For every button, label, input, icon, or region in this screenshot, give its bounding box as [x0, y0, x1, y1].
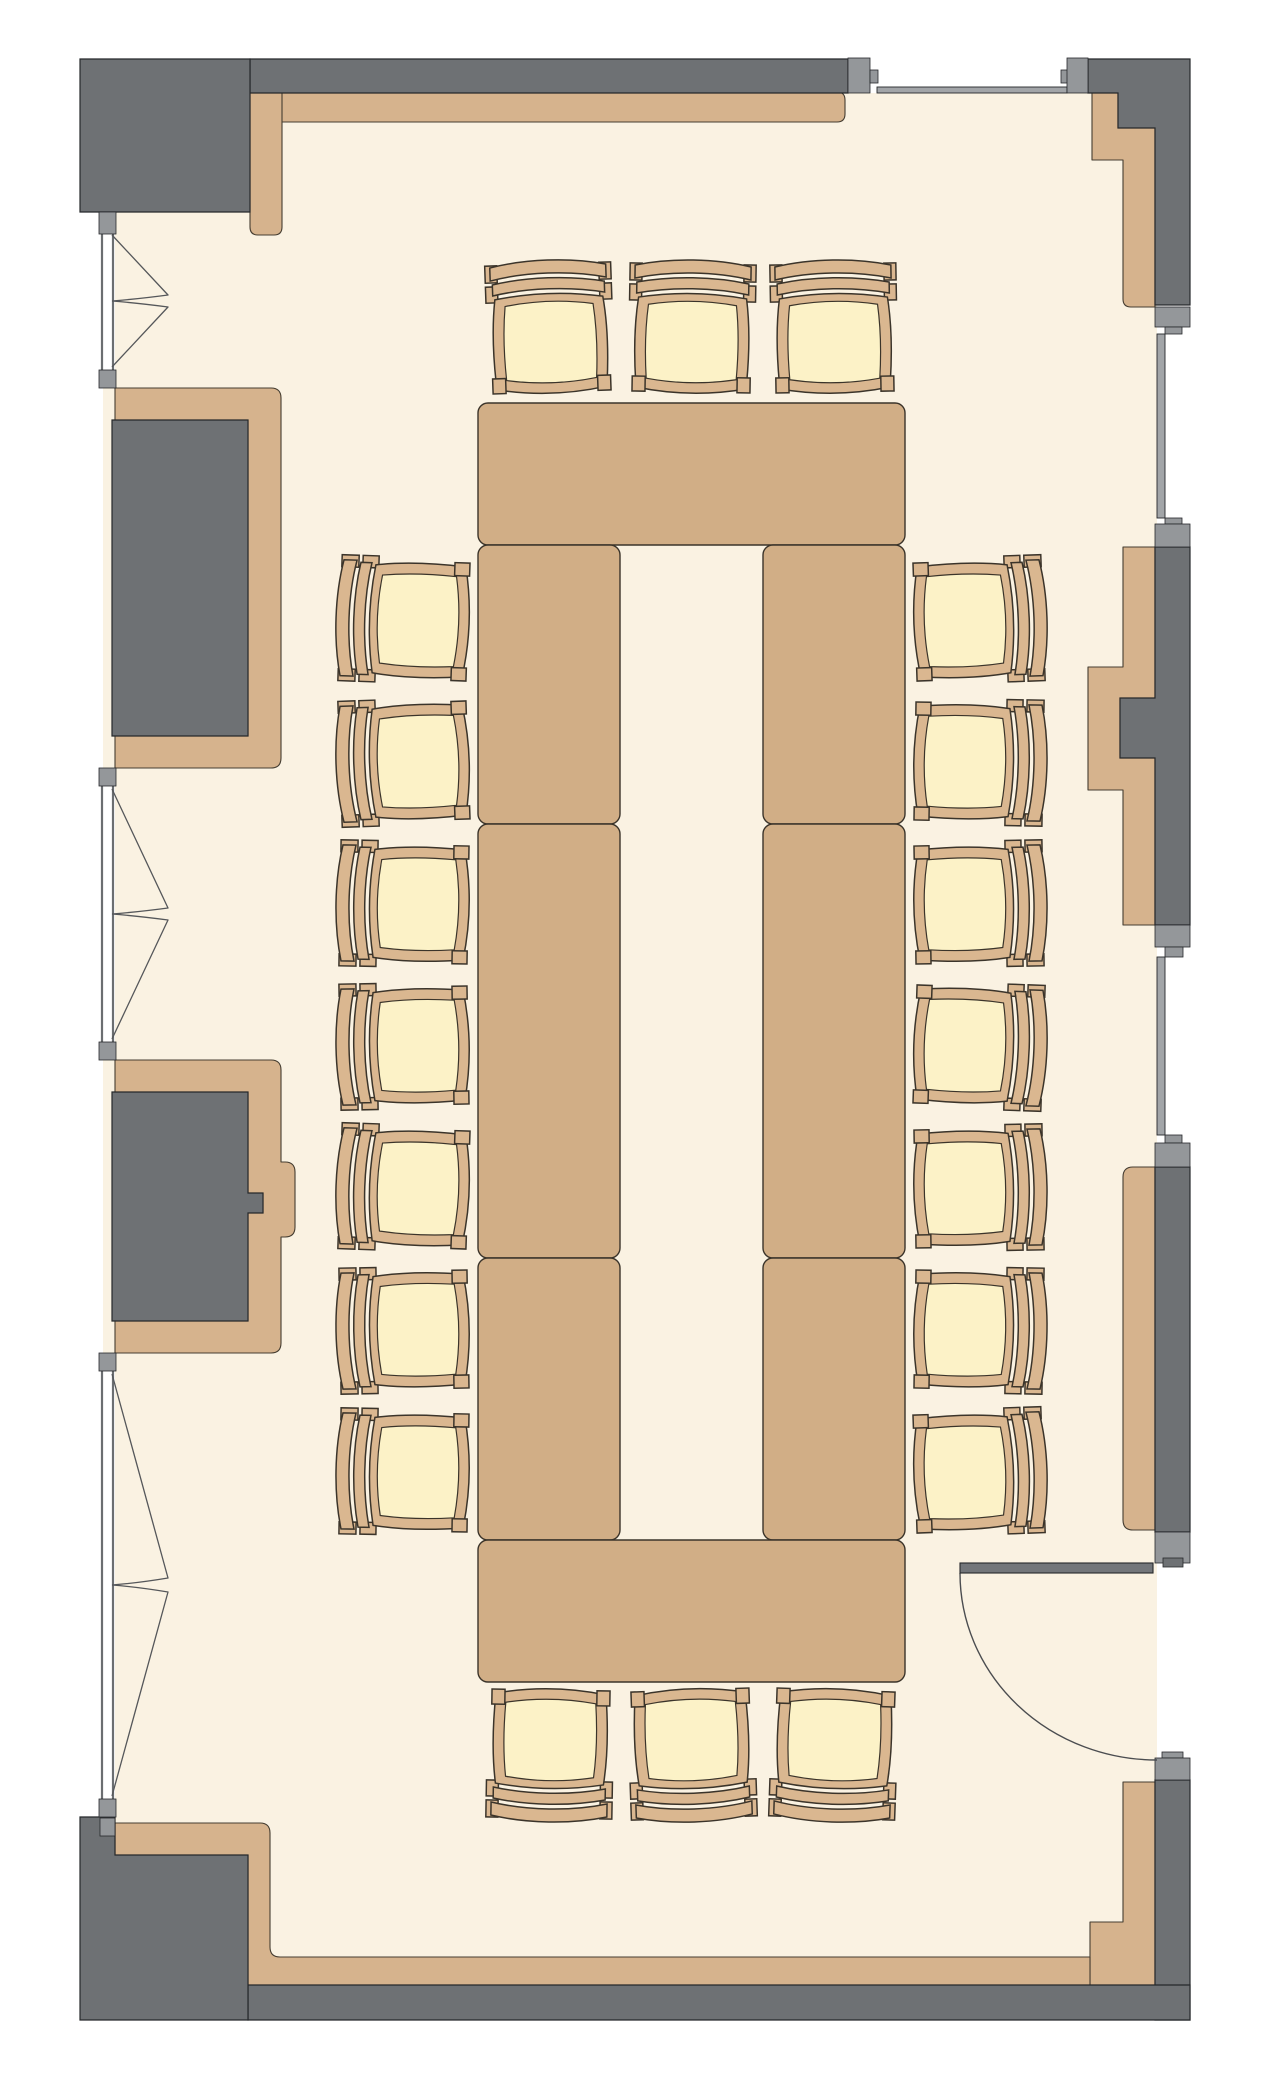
- chair-seat-cushion: [376, 857, 459, 951]
- chair-front-post: [914, 807, 929, 820]
- window-jamb-block: [1067, 58, 1088, 93]
- chair-seat-cushion: [503, 1698, 597, 1781]
- chair-front-post: [493, 379, 507, 394]
- chair-seat-cushion: [923, 1141, 1006, 1235]
- window-jamb-block: [1165, 947, 1183, 957]
- chair-front-post: [452, 986, 467, 999]
- chair-front-post: [914, 846, 929, 859]
- chair-front-post: [917, 1520, 932, 1534]
- chair-seat-cushion: [923, 1283, 1006, 1377]
- chair-front-post: [451, 1236, 466, 1250]
- chair-front-post: [452, 951, 467, 964]
- chair-front-post: [451, 701, 466, 715]
- chair-front-post: [917, 985, 932, 999]
- wall-top-band: [250, 59, 848, 93]
- right-window-frame-strip: [1157, 957, 1165, 1135]
- window-jamb-block: [99, 370, 116, 388]
- finish-top-band: [267, 92, 845, 122]
- table-north: [478, 403, 905, 545]
- chair-front-post: [597, 1691, 610, 1706]
- chair-front-post: [916, 1235, 931, 1248]
- chair-seat-cushion: [376, 1283, 459, 1377]
- wall-pier-left-upper: [112, 420, 248, 736]
- chair-front-post: [631, 1692, 645, 1707]
- chair-front-post: [736, 1688, 750, 1703]
- chair-seat-cushion: [923, 715, 1006, 809]
- chair-seat-cushion: [923, 573, 1008, 669]
- chair-seat-cushion: [787, 300, 881, 383]
- chair-front-post: [917, 668, 932, 682]
- chair-front-post: [455, 563, 470, 577]
- floor-plan-canvas: [0, 0, 1276, 2100]
- chair-front-post: [776, 378, 789, 393]
- chair-front-post: [632, 376, 645, 391]
- chair-front-post: [882, 1692, 896, 1707]
- chair-front-post: [452, 1270, 467, 1283]
- window-jamb-block: [1163, 1558, 1183, 1567]
- door-leaf: [960, 1563, 1153, 1573]
- window-jamb-block: [1155, 1758, 1190, 1780]
- window-jamb-block: [100, 1818, 115, 1836]
- chair-front-post: [455, 1131, 470, 1145]
- chair-front-post: [914, 1375, 929, 1388]
- chair-front-post: [454, 846, 469, 859]
- window-jamb-block: [1155, 925, 1190, 947]
- chair-seat-cushion: [787, 1698, 883, 1783]
- chair-front-post: [454, 1414, 469, 1427]
- window-jamb-block: [1155, 524, 1190, 547]
- window-jamb-block: [848, 58, 870, 93]
- wall-pier-left-lower: [112, 1092, 263, 1321]
- window-jamb-block: [99, 768, 116, 786]
- chair-front-post: [598, 375, 612, 390]
- window-jamb-block: [1155, 307, 1190, 327]
- chair-front-post: [451, 668, 466, 682]
- wall-pier-right-bottom: [1155, 1780, 1190, 2020]
- chair-front-post: [737, 378, 750, 393]
- finish-pier-right-door: [1123, 1167, 1155, 1530]
- chair-front-post: [916, 702, 931, 715]
- chair-seat-cushion: [923, 857, 1006, 951]
- chair-seat-cushion: [644, 1698, 740, 1783]
- window-jamb-block: [99, 1353, 116, 1371]
- conference-room-floor-plan: [0, 0, 1276, 2100]
- chair-seat-cushion: [376, 1425, 459, 1519]
- window-jamb-block: [99, 1799, 116, 1817]
- chair-seat-cushion: [376, 1141, 461, 1237]
- chair-front-post: [881, 376, 894, 391]
- chair-seat-cushion: [923, 998, 1008, 1094]
- chair-seat-cushion: [503, 300, 599, 385]
- wall-corner-top-left: [80, 59, 250, 212]
- chair-front-post: [455, 806, 470, 820]
- chair-front-post: [916, 951, 931, 964]
- chair-front-post: [454, 1091, 469, 1104]
- table-east-1: [763, 545, 905, 824]
- chair-seat-cushion: [923, 1425, 1008, 1521]
- chair-front-post: [454, 1375, 469, 1388]
- table-west-2: [478, 824, 620, 1258]
- chair-front-post: [913, 563, 928, 577]
- chair-seat-cushion: [645, 300, 739, 383]
- table-east-2: [763, 824, 905, 1258]
- window-jamb-block: [1165, 1135, 1182, 1143]
- chair-front-post: [777, 1688, 791, 1703]
- table-west-1: [478, 545, 620, 824]
- window-jamb-block: [99, 1042, 116, 1060]
- chair-front-post: [452, 1519, 467, 1532]
- chair-front-post: [916, 1270, 931, 1283]
- chair-front-post: [913, 1090, 928, 1104]
- wall-bottom-band: [248, 1985, 1190, 2020]
- chair-front-post: [913, 1415, 928, 1429]
- top-window-glazing-bar: [877, 87, 1067, 93]
- table-west-3: [478, 1258, 620, 1540]
- window-jamb-block: [1165, 518, 1182, 524]
- finish-top-left-vertical: [250, 92, 282, 235]
- window-jamb-block: [1155, 1143, 1190, 1167]
- right-window-frame-strip: [1157, 334, 1165, 518]
- chair-front-post: [914, 1130, 929, 1143]
- window-jamb-block: [870, 70, 878, 83]
- chair-seat-cushion: [376, 714, 461, 810]
- table-east-3: [763, 1258, 905, 1540]
- chair-seat-cushion: [376, 573, 461, 669]
- table-south: [478, 1540, 905, 1682]
- window-jamb-block: [1165, 327, 1182, 334]
- window-jamb-block: [1162, 1752, 1183, 1758]
- chair-seat-cushion: [376, 999, 459, 1093]
- wall-pier-right-door: [1155, 1167, 1190, 1532]
- window-jamb-block: [99, 212, 116, 234]
- chair-front-post: [492, 1689, 505, 1704]
